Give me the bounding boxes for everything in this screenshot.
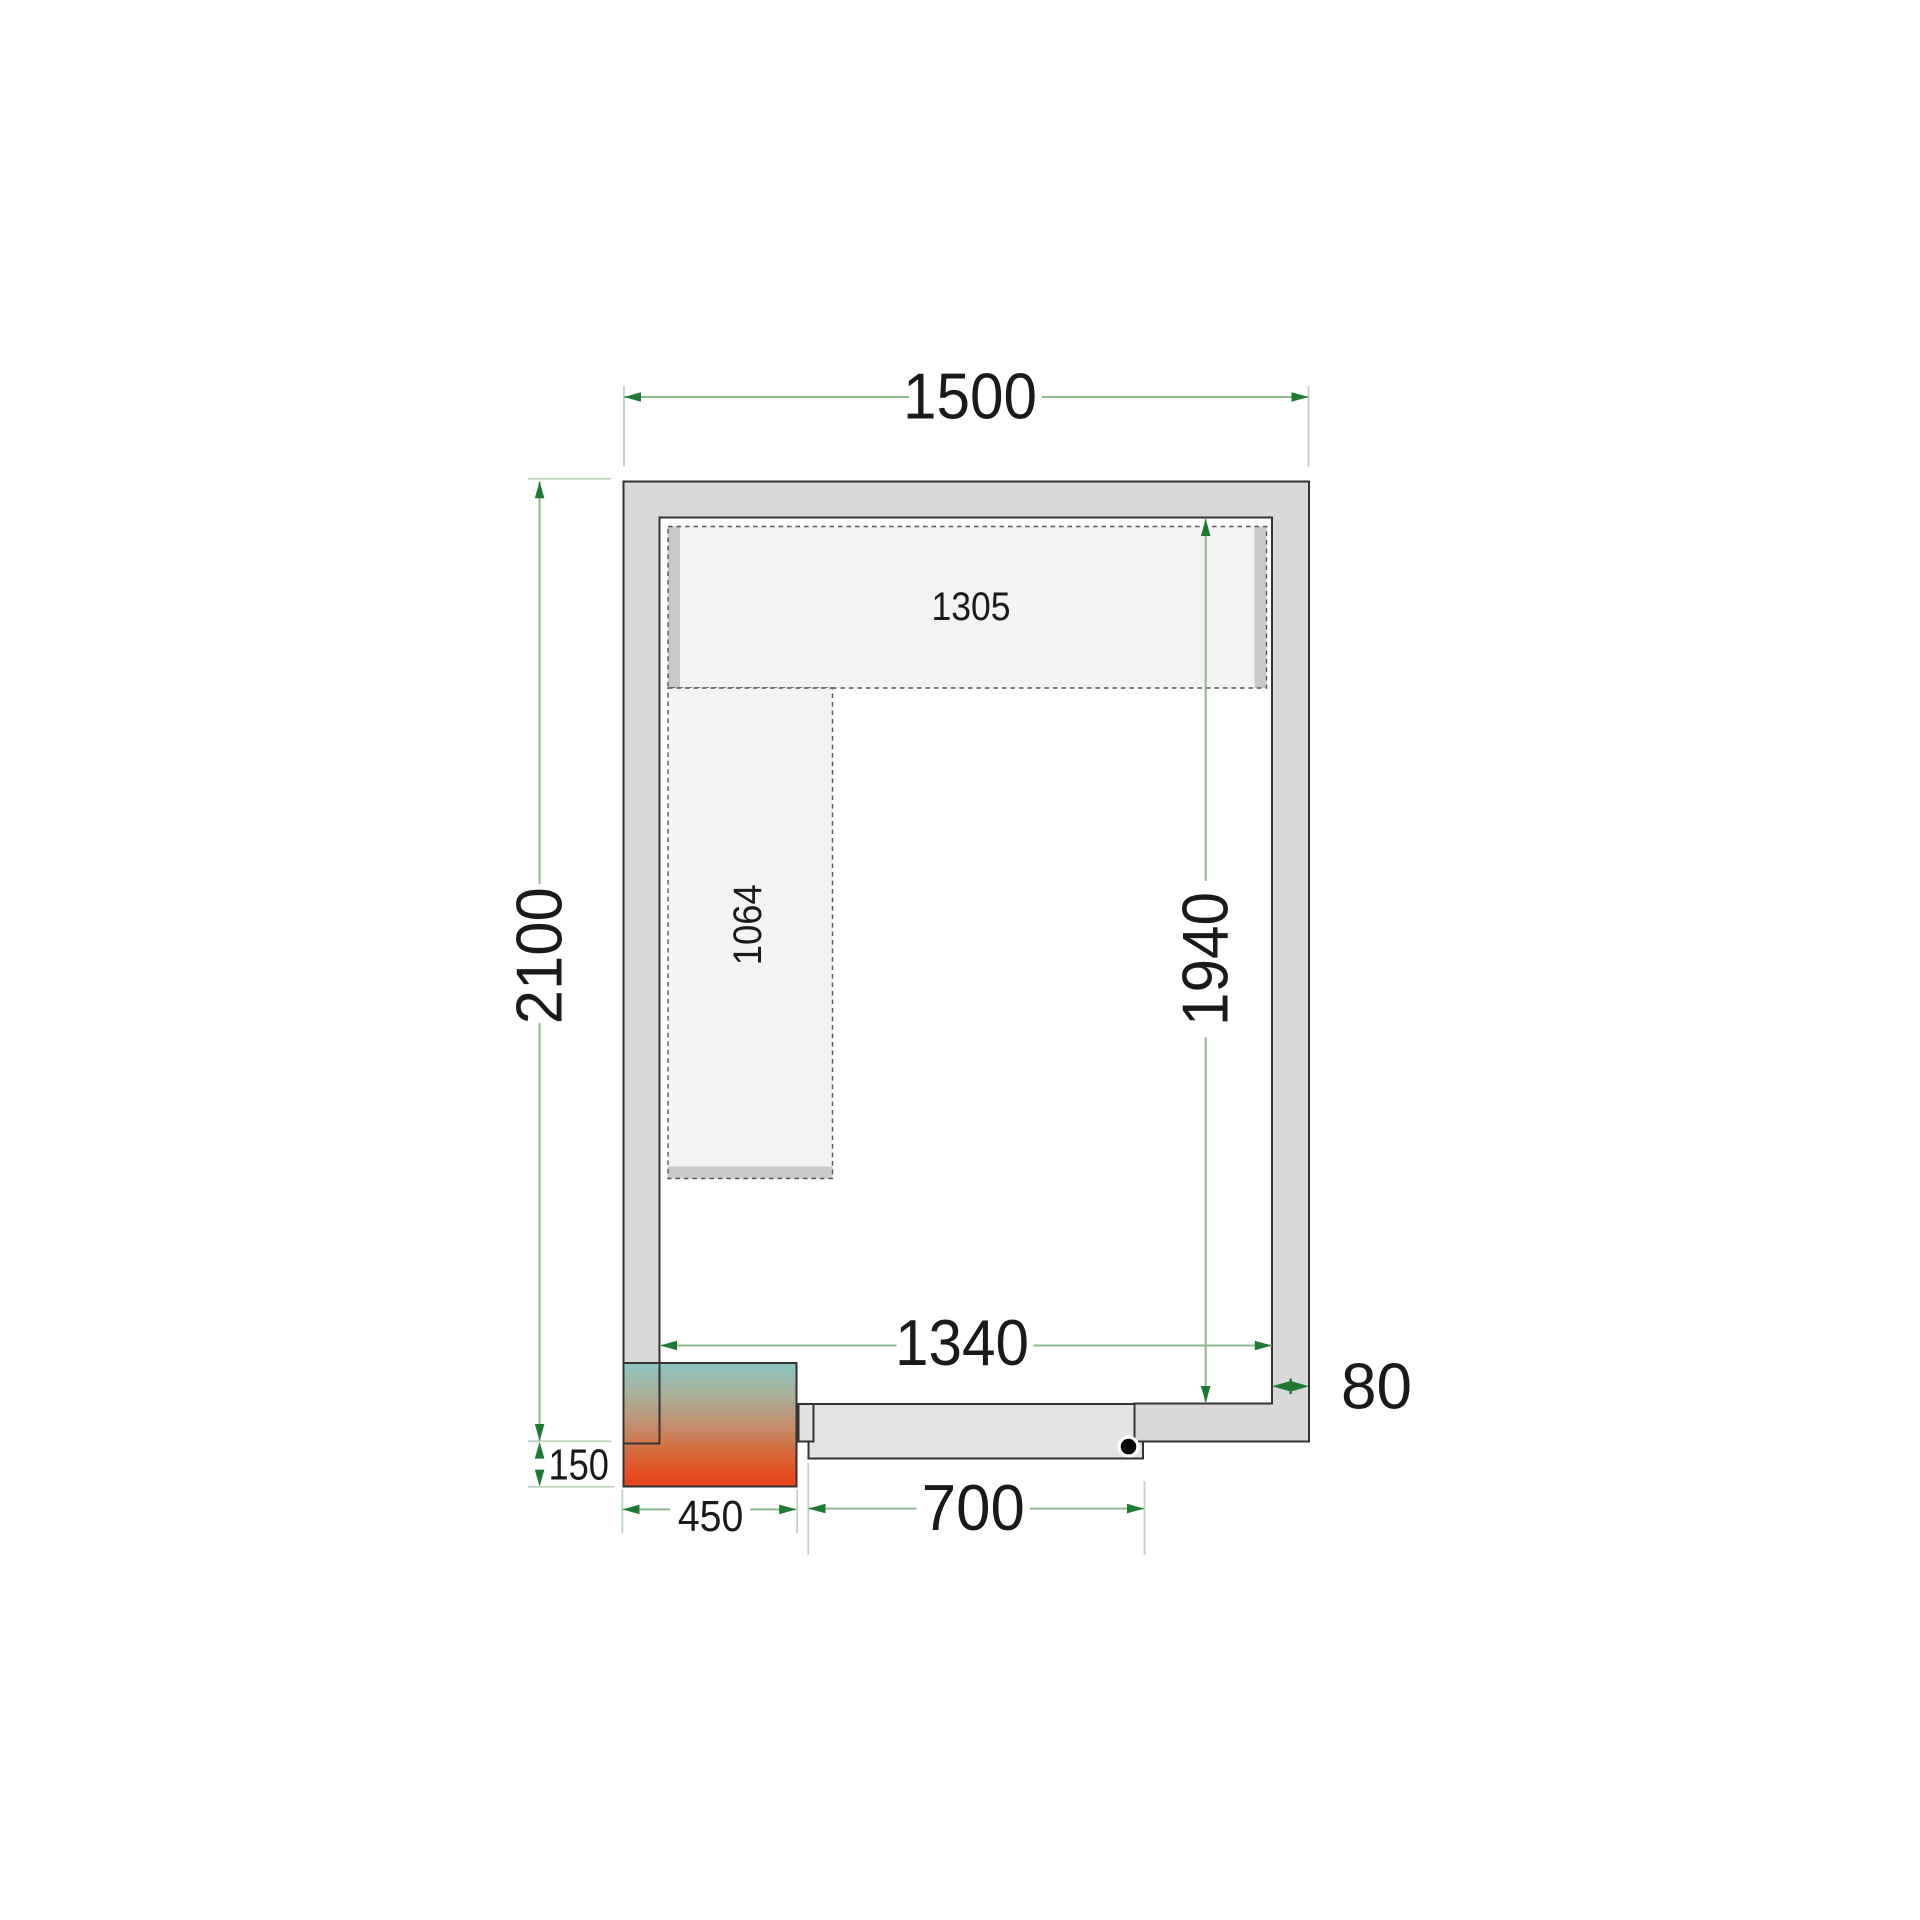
svg-text:2100: 2100: [502, 887, 575, 1024]
svg-text:1500: 1500: [903, 360, 1037, 433]
svg-text:700: 700: [922, 1471, 1025, 1544]
svg-text:1940: 1940: [1169, 892, 1242, 1026]
svg-text:80: 80: [1341, 1350, 1412, 1423]
svg-text:1064: 1064: [726, 884, 770, 965]
svg-text:1305: 1305: [932, 585, 1011, 629]
svg-text:450: 450: [678, 1492, 744, 1541]
svg-text:1340: 1340: [895, 1306, 1029, 1379]
svg-text:150: 150: [548, 1441, 609, 1490]
